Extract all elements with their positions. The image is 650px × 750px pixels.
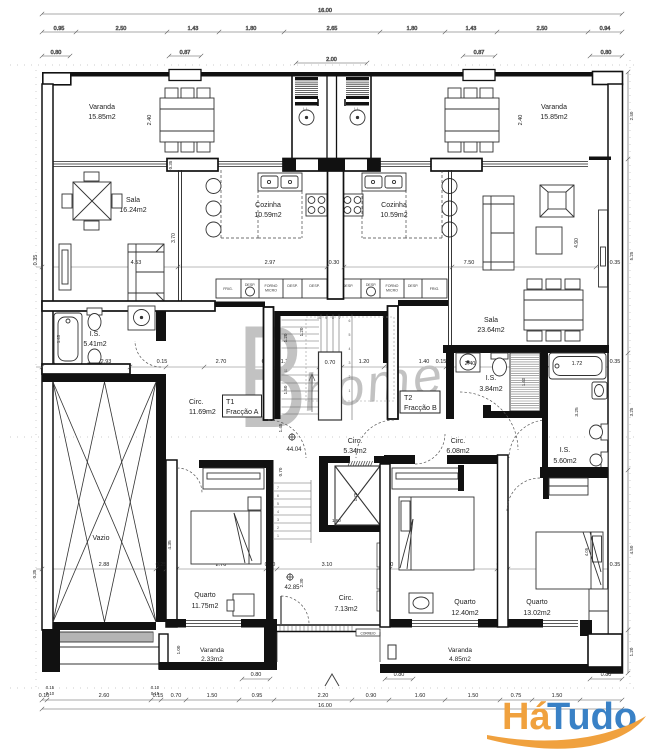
svg-text:MICRO: MICRO: [386, 289, 398, 293]
svg-text:0.35: 0.35: [168, 160, 173, 169]
svg-text:42.85: 42.85: [284, 585, 300, 591]
svg-text:0.95: 0.95: [252, 693, 263, 699]
svg-text:DESP.: DESP.: [408, 284, 418, 288]
svg-text:1.45: 1.45: [278, 423, 283, 432]
svg-text:CORREIO: CORREIO: [361, 632, 376, 636]
svg-text:Cozinha: Cozinha: [255, 202, 281, 209]
svg-text:7.50: 7.50: [464, 260, 475, 266]
svg-text:Vazio: Vazio: [93, 535, 110, 542]
svg-text:FORNO: FORNO: [265, 284, 278, 288]
svg-text:Fracção B: Fracção B: [404, 403, 437, 412]
svg-text:2.00: 2.00: [326, 57, 337, 63]
svg-text:3.84m2: 3.84m2: [479, 386, 502, 393]
svg-text:0.70: 0.70: [171, 693, 182, 699]
svg-text:11.69m2: 11.69m2: [189, 409, 216, 416]
svg-text:0.35: 0.35: [33, 255, 39, 266]
svg-text:1.50: 1.50: [207, 693, 218, 699]
svg-text:2.50: 2.50: [116, 26, 127, 32]
svg-text:7.13m2: 7.13m2: [334, 606, 357, 613]
svg-text:0.25: 0.25: [156, 562, 167, 568]
svg-text:Quarto: Quarto: [526, 599, 548, 606]
svg-text:Circ.: Circ.: [189, 399, 203, 406]
svg-text:2.65: 2.65: [327, 26, 338, 32]
svg-text:0.10: 0.10: [39, 693, 50, 699]
svg-text:0.80: 0.80: [251, 672, 262, 678]
svg-text:5.60m2: 5.60m2: [553, 458, 576, 465]
svg-text:8: 8: [332, 316, 334, 320]
svg-text:Sala: Sala: [126, 197, 140, 204]
svg-text:Varanda: Varanda: [200, 647, 224, 654]
svg-text:0.95: 0.95: [54, 26, 65, 32]
svg-text:3.10: 3.10: [322, 562, 333, 568]
svg-text:2.40: 2.40: [147, 115, 153, 126]
svg-text:12.40m2: 12.40m2: [451, 610, 478, 617]
svg-text:0.15: 0.15: [153, 693, 164, 699]
svg-text:DESP.: DESP.: [366, 283, 376, 287]
svg-text:0.15: 0.15: [157, 359, 168, 365]
svg-text:3.70: 3.70: [171, 233, 177, 243]
svg-text:15.85m2: 15.85m2: [88, 114, 115, 121]
svg-text:Circ.: Circ.: [339, 595, 353, 602]
svg-text:0.80: 0.80: [51, 50, 62, 56]
svg-text:L.L.: L.L.: [354, 107, 359, 111]
svg-text:44.04: 44.04: [286, 447, 302, 453]
svg-text:4.85m2: 4.85m2: [449, 656, 471, 663]
svg-text:3: 3: [277, 518, 279, 522]
svg-text:7: 7: [339, 316, 341, 320]
svg-text:2.40: 2.40: [518, 115, 524, 126]
svg-text:Varanda: Varanda: [89, 104, 115, 111]
svg-text:2.93: 2.93: [101, 359, 112, 365]
svg-text:1.43: 1.43: [188, 26, 199, 32]
svg-text:1: 1: [349, 389, 351, 393]
svg-text:0.35: 0.35: [32, 569, 37, 578]
svg-text:6: 6: [349, 319, 351, 323]
svg-text:5: 5: [349, 333, 351, 337]
svg-text:0.80: 0.80: [394, 672, 405, 678]
svg-text:1.80: 1.80: [407, 26, 418, 32]
svg-text:0.80: 0.80: [601, 50, 612, 56]
svg-text:Quarto: Quarto: [194, 592, 216, 599]
svg-text:I.S.: I.S.: [486, 375, 497, 382]
svg-text:2.88: 2.88: [99, 562, 110, 568]
svg-text:Varanda: Varanda: [541, 104, 567, 111]
svg-text:3: 3: [349, 361, 351, 365]
svg-text:FRIG.: FRIG.: [430, 287, 440, 291]
svg-text:2: 2: [349, 375, 351, 379]
svg-text:4: 4: [277, 510, 279, 514]
svg-text:2.33m2: 2.33m2: [201, 656, 223, 663]
svg-text:4.35: 4.35: [167, 540, 173, 550]
svg-text:L.L.: L.L.: [303, 107, 308, 111]
svg-text:Varanda: Varanda: [448, 647, 472, 654]
svg-text:1.45: 1.45: [56, 334, 61, 343]
svg-text:1.20: 1.20: [283, 333, 288, 342]
svg-text:DESP.: DESP.: [245, 283, 255, 287]
svg-text:2.97: 2.97: [265, 260, 276, 266]
svg-text:16.24m2: 16.24m2: [119, 207, 146, 214]
svg-text:1: 1: [277, 534, 279, 538]
svg-text:15.85m2: 15.85m2: [540, 114, 567, 121]
svg-text:10.59m2: 10.59m2: [380, 212, 407, 219]
svg-text:4.05: 4.05: [584, 547, 589, 556]
svg-text:7: 7: [277, 486, 279, 490]
svg-text:T1: T1: [226, 397, 234, 406]
svg-text:2.20: 2.20: [318, 693, 329, 699]
svg-text:0.35: 0.35: [610, 260, 621, 266]
svg-text:2.30: 2.30: [299, 578, 304, 587]
svg-text:5.41m2: 5.41m2: [83, 341, 106, 348]
svg-text:Fracção A: Fracção A: [226, 407, 259, 416]
svg-text:3.25: 3.25: [574, 407, 580, 417]
svg-text:3.25: 3.25: [629, 407, 634, 416]
svg-text:5.34m2: 5.34m2: [343, 448, 366, 455]
svg-text:0.94: 0.94: [600, 26, 611, 32]
svg-text:1.50: 1.50: [468, 693, 479, 699]
svg-text:0.35: 0.35: [610, 359, 621, 365]
svg-text:1.60: 1.60: [415, 693, 426, 699]
svg-text:0.35: 0.35: [610, 562, 621, 568]
svg-text:11: 11: [284, 369, 288, 373]
svg-text:I.S.: I.S.: [90, 331, 101, 338]
svg-text:Há: Há: [502, 696, 551, 738]
svg-text:2.40: 2.40: [629, 111, 634, 120]
svg-text:9: 9: [325, 316, 327, 320]
svg-text:2: 2: [277, 526, 279, 530]
svg-text:1.60: 1.60: [332, 518, 341, 523]
svg-text:6.08m2: 6.08m2: [446, 448, 469, 455]
svg-text:1.50: 1.50: [283, 385, 288, 394]
svg-text:0.70: 0.70: [278, 467, 283, 476]
svg-text:5: 5: [277, 502, 279, 506]
svg-text:Circ.: Circ.: [451, 438, 465, 445]
svg-text:16.00: 16.00: [318, 703, 332, 709]
svg-text:1.72: 1.72: [572, 361, 583, 367]
svg-text:2.60: 2.60: [99, 693, 110, 699]
svg-text:2.50: 2.50: [537, 26, 548, 32]
svg-text:0.30: 0.30: [329, 260, 340, 266]
svg-text:0.87: 0.87: [180, 50, 191, 56]
svg-text:0.15: 0.15: [46, 685, 55, 690]
svg-text:13.02m2: 13.02m2: [523, 610, 550, 617]
svg-text:T2: T2: [404, 393, 412, 402]
svg-text:1.75: 1.75: [353, 492, 358, 501]
svg-text:16.00: 16.00: [318, 8, 332, 14]
svg-text:23.64m2: 23.64m2: [477, 327, 504, 334]
svg-text:5.25: 5.25: [629, 251, 634, 260]
svg-text:0.70: 0.70: [325, 360, 336, 366]
svg-text:0.90: 0.90: [366, 693, 377, 699]
svg-text:2.70: 2.70: [216, 359, 227, 365]
svg-text:1.20: 1.20: [629, 647, 634, 656]
svg-text:DESP.: DESP.: [343, 284, 353, 288]
svg-text:DESP.: DESP.: [287, 284, 297, 288]
svg-text:1.80: 1.80: [246, 26, 257, 32]
svg-text:2.40: 2.40: [465, 361, 476, 367]
svg-text:0.80: 0.80: [601, 672, 612, 678]
svg-text:11.75m2: 11.75m2: [192, 603, 219, 610]
svg-text:1.43: 1.43: [466, 26, 477, 32]
svg-text:1.00: 1.00: [176, 645, 181, 654]
svg-text:I.S.: I.S.: [560, 447, 571, 454]
svg-text:4.53: 4.53: [131, 260, 142, 266]
svg-text:DESP.: DESP.: [309, 284, 319, 288]
svg-text:4: 4: [349, 347, 351, 351]
svg-text:MICRO: MICRO: [265, 289, 277, 293]
svg-text:4.90: 4.90: [574, 238, 580, 248]
svg-text:1.40: 1.40: [521, 377, 526, 386]
svg-text:6: 6: [277, 494, 279, 498]
svg-text:0.87: 0.87: [474, 50, 485, 56]
svg-text:1.20: 1.20: [299, 327, 304, 336]
svg-text:Quarto: Quarto: [454, 599, 476, 606]
svg-text:FORNO: FORNO: [386, 284, 399, 288]
svg-text:Cozinha: Cozinha: [381, 202, 407, 209]
svg-text:10: 10: [317, 316, 321, 320]
svg-text:FRIG.: FRIG.: [223, 287, 233, 291]
svg-text:10.59m2: 10.59m2: [254, 212, 281, 219]
svg-text:Sala: Sala: [484, 317, 498, 324]
svg-text:4.50: 4.50: [629, 545, 634, 554]
svg-text:0.10: 0.10: [151, 685, 160, 690]
